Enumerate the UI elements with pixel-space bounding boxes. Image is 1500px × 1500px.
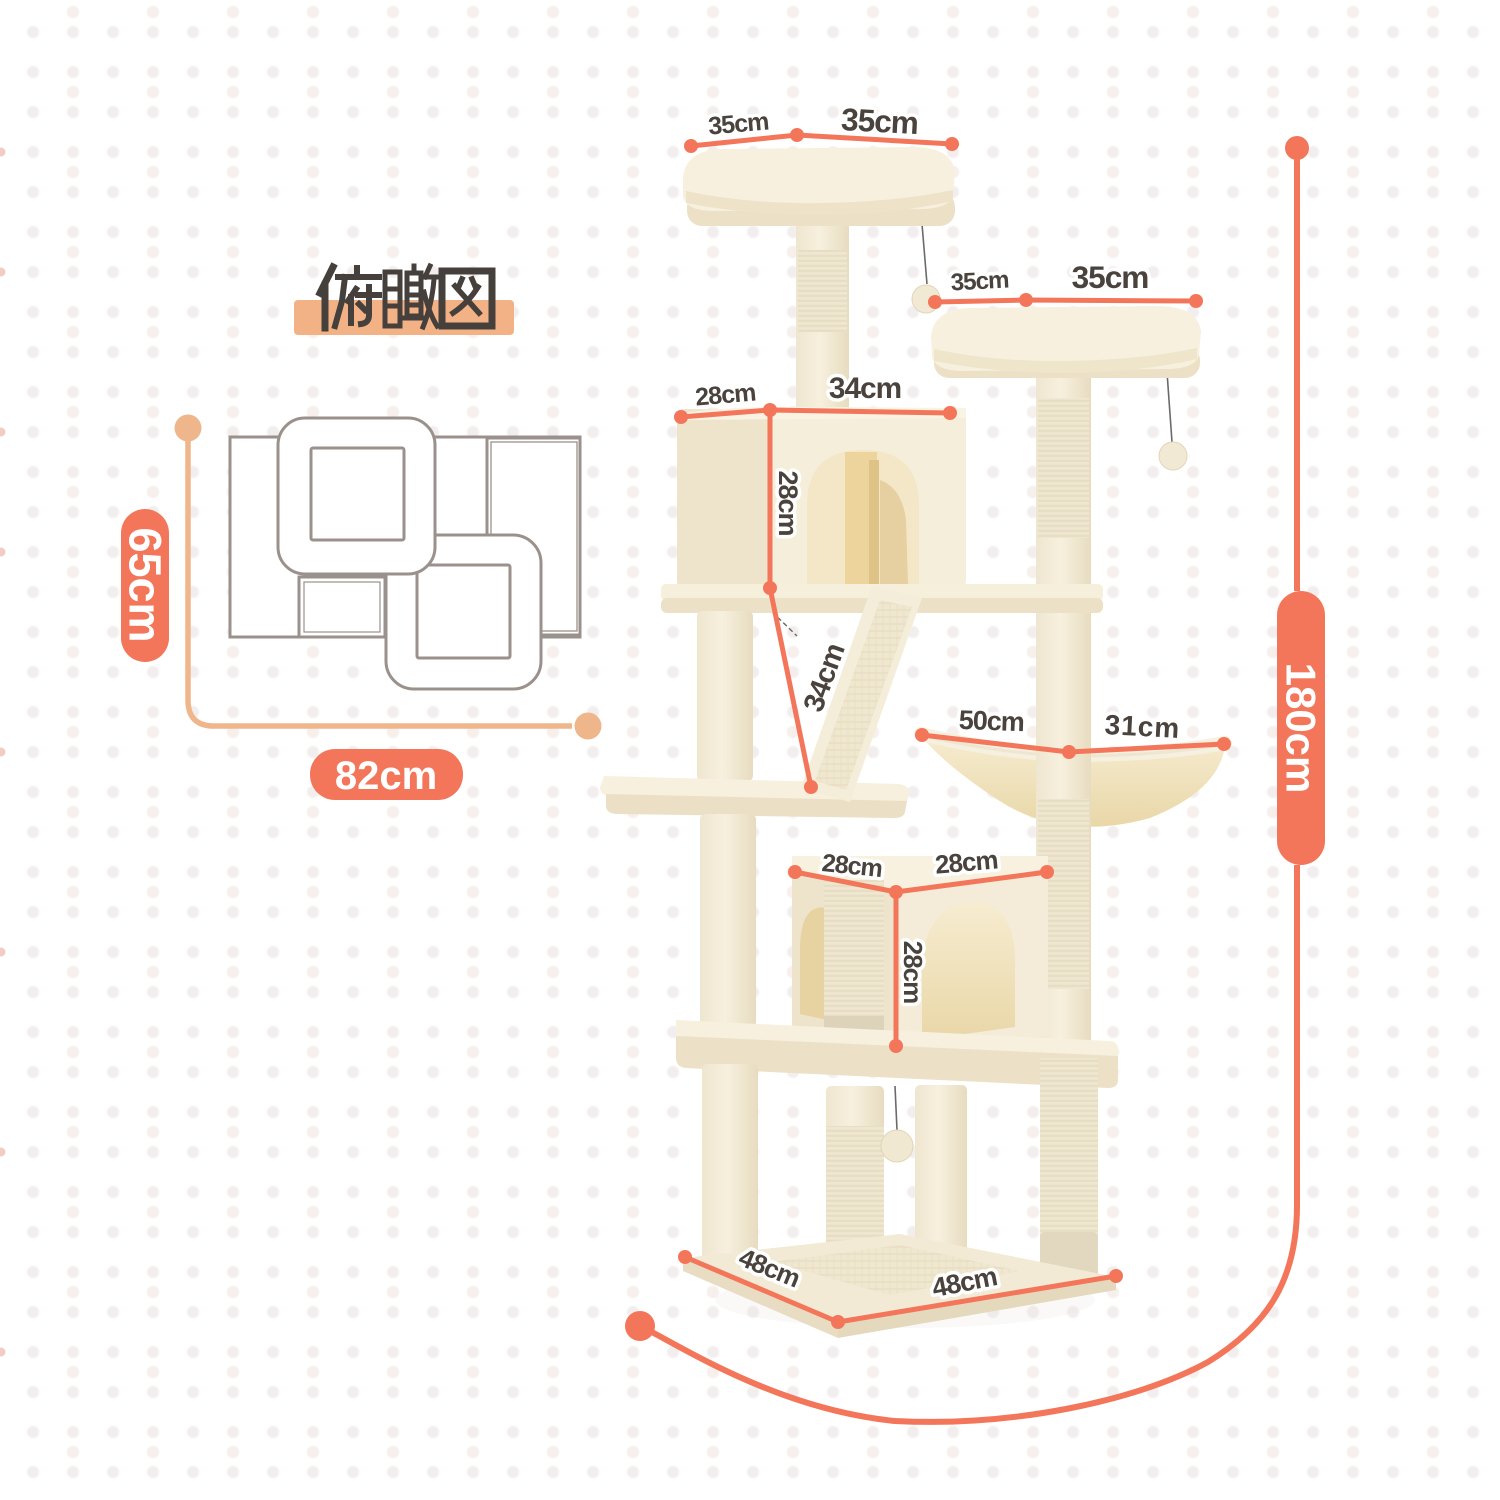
svg-text:31cm: 31cm <box>1104 709 1181 744</box>
svg-text:28cm: 28cm <box>694 378 756 411</box>
svg-text:65cm: 65cm <box>120 527 171 642</box>
svg-text:35cm: 35cm <box>950 267 1009 297</box>
svg-text:28cm: 28cm <box>898 941 928 1004</box>
svg-text:35cm: 35cm <box>840 101 919 141</box>
svg-text:34cm: 34cm <box>829 372 901 405</box>
svg-text:180cm: 180cm <box>1278 663 1325 794</box>
svg-text:28cm: 28cm <box>773 470 803 535</box>
svg-text:35cm: 35cm <box>707 107 769 140</box>
svg-text:50cm: 50cm <box>958 705 1024 737</box>
svg-text:35cm: 35cm <box>1072 259 1149 295</box>
svg-text:82cm: 82cm <box>335 754 437 798</box>
svg-text:28cm: 28cm <box>934 844 999 879</box>
